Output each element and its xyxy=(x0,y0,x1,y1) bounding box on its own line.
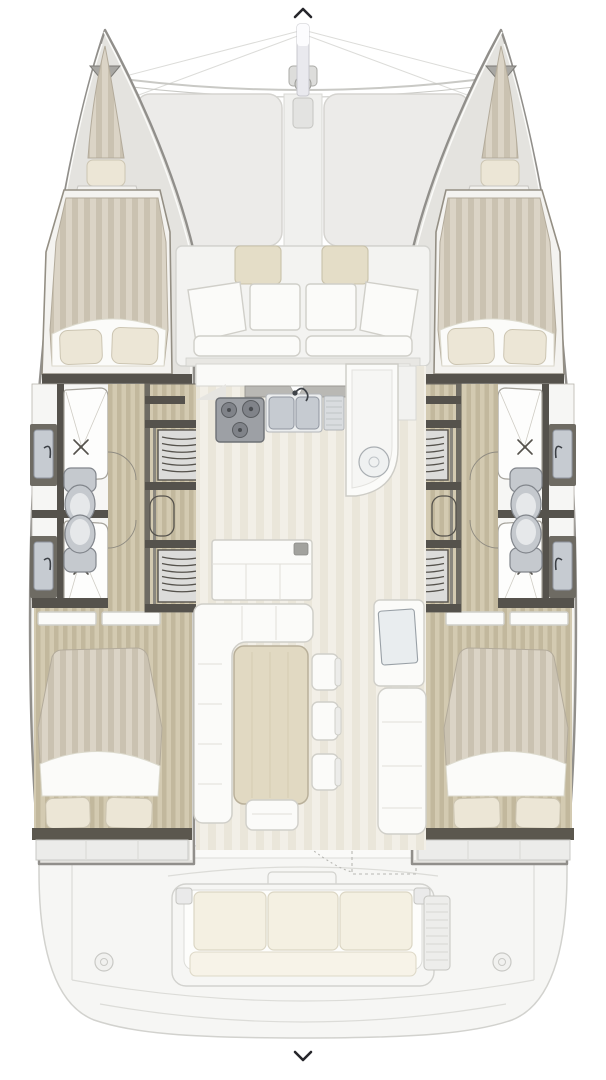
floorplan-viewport xyxy=(0,0,606,1080)
galley-stove xyxy=(216,398,264,442)
chart-table-settee xyxy=(378,688,426,834)
sideboard xyxy=(212,540,312,600)
winch xyxy=(95,953,113,971)
bench-cushion xyxy=(268,892,338,950)
seat-back xyxy=(250,284,300,330)
saloon-table xyxy=(234,646,308,804)
catamaran-floorplan xyxy=(0,0,606,1080)
chart-table xyxy=(374,600,424,686)
life-raft-locker xyxy=(424,896,450,970)
dining-chair xyxy=(312,654,341,690)
forward-cockpit xyxy=(176,246,430,366)
dining-chair xyxy=(312,754,341,790)
windlass xyxy=(293,98,313,128)
dining-chair xyxy=(312,702,341,740)
winch xyxy=(493,953,511,971)
windshield-frame xyxy=(306,336,412,356)
windshield-frame xyxy=(194,336,300,356)
bench-cushion xyxy=(194,892,266,950)
aft-cockpit-bench xyxy=(172,884,450,986)
forward-cockpit-cushion xyxy=(322,246,368,284)
galley-peninsula xyxy=(346,364,398,496)
table-end-bench xyxy=(246,800,298,830)
saloon xyxy=(194,364,426,850)
carousel-next-button[interactable] xyxy=(283,1044,323,1070)
forward-cockpit-cushion xyxy=(235,246,281,284)
round-sink xyxy=(359,447,389,477)
galley-sink xyxy=(266,389,322,433)
seat-back xyxy=(306,284,356,330)
carousel-prev-button[interactable] xyxy=(283,0,323,26)
bench-cushion xyxy=(340,892,412,950)
bench-seat-front xyxy=(190,952,416,976)
